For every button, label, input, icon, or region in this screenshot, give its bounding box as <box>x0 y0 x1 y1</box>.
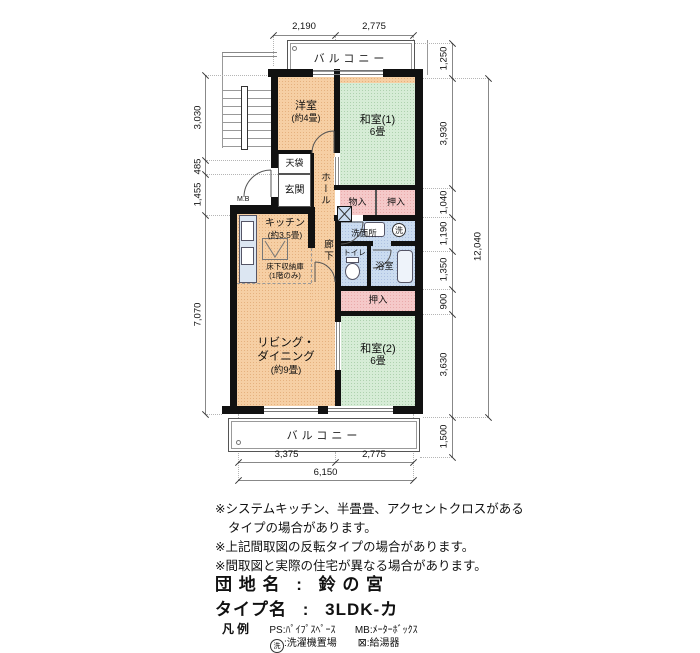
room-size: 6畳 <box>340 127 415 139</box>
room-name: 和室(2) <box>341 343 415 356</box>
room-name: リビング・ <box>237 337 335 351</box>
room-name: キッチン <box>256 218 314 230</box>
room-size: (約9畳) <box>237 365 335 376</box>
oshiire-upper-label: 押入 <box>377 197 415 208</box>
room-name: 和室(1) <box>340 114 415 127</box>
washitsu1-label: 和室(1) 6畳 <box>340 114 415 139</box>
room-size: (約4畳) <box>278 113 334 124</box>
bath-label: 浴室 <box>371 261 398 272</box>
oshiire-lower-label: 押入 <box>341 295 415 306</box>
underfloor-storage-label: 床下収納庫 (1階のみ) <box>254 262 316 280</box>
toilet-label: トイレ <box>341 248 368 257</box>
ps-crossbox-icon <box>337 206 352 222</box>
genkan-label: 玄関 <box>278 185 311 197</box>
corridor-label: 廊下 <box>319 231 333 269</box>
monoire-label: 物入 <box>340 197 375 208</box>
hall-label: ホール <box>316 164 330 214</box>
yoshitsu-door-arc <box>312 131 334 153</box>
yoshitsu-label: 洋室 (約4畳) <box>278 100 334 124</box>
room-size: 6畳 <box>341 356 415 368</box>
living-label: リビング・ ダイニング (約9畳) <box>237 337 335 376</box>
tenbukuro-label: 天袋 <box>278 158 311 169</box>
room-size: (約3.5畳) <box>256 230 314 240</box>
door-arcs <box>0 0 700 650</box>
senmenjo-label: 洗面所 <box>340 228 388 238</box>
entrance-door-arc <box>244 170 271 197</box>
room-name: ダイニング <box>237 351 335 365</box>
room-name: 洋室 <box>278 100 334 113</box>
kitchen-label: キッチン (約3.5畳) <box>256 218 314 240</box>
mb-label: M.B <box>237 196 261 204</box>
washitsu2-label: 和室(2) 6畳 <box>341 343 415 368</box>
